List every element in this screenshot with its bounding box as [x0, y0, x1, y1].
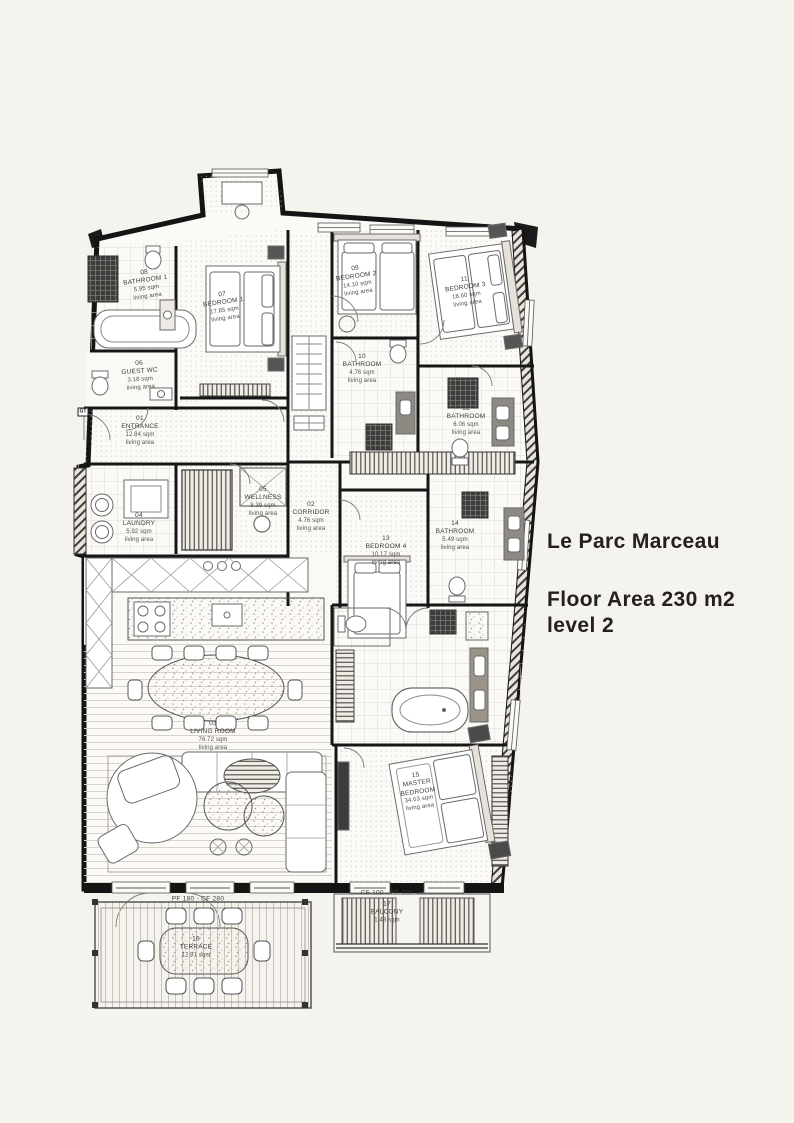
- room-name: LAUNDRY: [111, 520, 167, 528]
- toilet: [452, 439, 468, 457]
- room-note: living area: [173, 744, 253, 752]
- toilet: [346, 616, 366, 632]
- room-name: BATHROOM: [438, 413, 494, 421]
- sink: [212, 604, 242, 626]
- room-number: 04: [111, 512, 167, 520]
- room-number: 05: [235, 486, 291, 494]
- room-name: BALCONY: [355, 909, 419, 917]
- room-area: 12.91 sqm: [161, 953, 231, 961]
- room-number: 12: [438, 405, 494, 413]
- room-note: living area: [427, 544, 483, 552]
- room-note: living area: [354, 559, 418, 567]
- sauna: [182, 470, 232, 550]
- room-name: BEDROOM 4: [354, 543, 418, 551]
- room-number: 01: [108, 415, 172, 423]
- pouf: [244, 796, 284, 836]
- room-note: living area: [438, 429, 494, 437]
- sofa-2: [286, 772, 326, 872]
- room-label-living-room: 03 LIVING ROOM 76.72 sqm living area: [173, 720, 253, 752]
- nightstand: [268, 246, 284, 259]
- nightstand: [504, 334, 523, 349]
- nightstand: [488, 223, 507, 238]
- room-area: 6.06 sqm: [438, 422, 494, 430]
- nightstand: [268, 358, 284, 371]
- room-note: living area: [235, 510, 291, 518]
- room-label-wellness: 05 WELLNESS 8.39 sqm living area: [235, 486, 291, 518]
- level-text: level 2: [547, 613, 735, 639]
- room-label-terrace: 16 TERRACE 12.91 sqm: [161, 936, 231, 961]
- room-note: living area: [334, 377, 390, 385]
- washer: [91, 494, 113, 516]
- tall-cabinets: [86, 558, 112, 688]
- dining-table: [148, 655, 284, 721]
- room-number: 03: [173, 720, 253, 728]
- nightstand: [488, 841, 510, 859]
- title-block: Le Parc Marceau Floor Area 230 m2 level …: [547, 530, 735, 639]
- room-area: 5.49 sqm: [427, 537, 483, 545]
- room-name: BATHROOM: [334, 361, 390, 369]
- room-label-bathroom-12: 12 BATHROOM 6.06 sqm living area: [438, 405, 494, 437]
- room-name: LIVING ROOM: [173, 728, 253, 736]
- planter: [420, 898, 474, 944]
- room-label-laundry: 04 LAUNDRY 5.92 sqm living area: [111, 512, 167, 544]
- shower: [462, 492, 488, 518]
- room-area: 8.39 sqm: [235, 503, 291, 511]
- room-area: 76.72 sqm: [173, 737, 253, 745]
- room-number: 02: [283, 501, 339, 509]
- nightstand: [468, 725, 490, 743]
- utility-panel-tag: GT: [78, 408, 89, 417]
- room-area: 1.48 sqm: [355, 918, 419, 926]
- room-area: 4.76 sqm: [334, 370, 390, 378]
- media-wall: [338, 762, 349, 830]
- shower: [366, 424, 392, 450]
- toilet: [390, 345, 406, 363]
- room-name: CORRIDOR: [283, 509, 339, 517]
- room-label-bathroom-14: 14 BATHROOM 5.49 sqm living area: [427, 520, 483, 552]
- hallway-wardrobe: [292, 336, 326, 430]
- room-label-guest-wc: 06 GUEST WC 3.18 sqm living area: [107, 358, 173, 395]
- room-name: ENTRANCE: [108, 423, 172, 431]
- room-note: living area: [283, 525, 339, 533]
- room-label-corridor: 02 CORRIDOR 4.76 sqm living area: [283, 501, 339, 533]
- dryer: [91, 521, 113, 543]
- room-name: TERRACE: [161, 944, 231, 952]
- room-number: 14: [427, 520, 483, 528]
- terrace-spec-label: PF 180 - CF 280: [172, 896, 225, 903]
- room-label-bedroom-4: 13 BEDROOM 4 10.17 sqm living area: [354, 535, 418, 567]
- room-number: 17: [355, 901, 419, 909]
- room-note: living area: [111, 536, 167, 544]
- toilet: [449, 577, 465, 595]
- shower: [430, 610, 456, 634]
- shower: [448, 378, 478, 408]
- room-number: 16: [161, 936, 231, 944]
- desk: [222, 182, 262, 204]
- room-area: 5.92 sqm: [111, 529, 167, 537]
- floor-area-text: Floor Area 230 m2: [547, 587, 735, 613]
- room-label-balcony: 17 BALCONY 1.48 sqm: [355, 901, 419, 926]
- room-label-entrance: 01 ENTRANCE 12.84 sqm living area: [108, 415, 172, 447]
- room-name: WELLNESS: [235, 494, 291, 502]
- room-note: living area: [108, 439, 172, 447]
- room-area: 12.84 sqm: [108, 432, 172, 440]
- room-label-bathroom-10: 10 BATHROOM 4.76 sqm living area: [334, 353, 390, 385]
- toilet: [92, 377, 108, 395]
- room-label-master-bedroom: 15 MASTER BEDROOM 34.63 sqm living area: [390, 768, 445, 815]
- balcony-spec-label: CF 100 - PF 100: [361, 890, 414, 897]
- room-name: BATHROOM: [427, 528, 483, 536]
- room-number: 10: [334, 353, 390, 361]
- room-number: 13: [354, 535, 418, 543]
- project-title: Le Parc Marceau: [547, 530, 735, 554]
- room-area: 10.17 sqm: [354, 552, 418, 560]
- room-area: 4.76 sqm: [283, 518, 339, 526]
